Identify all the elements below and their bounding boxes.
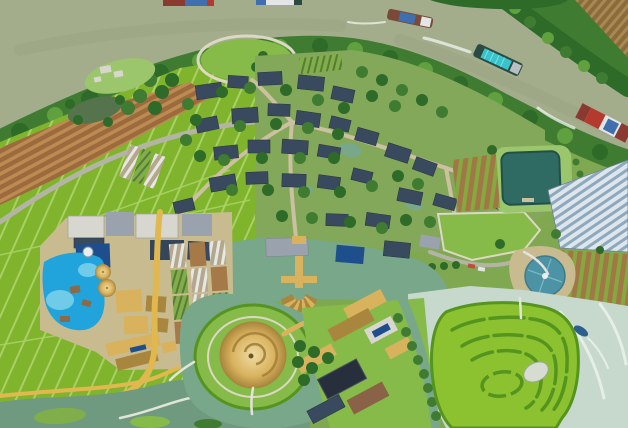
tree xyxy=(424,216,436,228)
tree xyxy=(344,216,356,228)
spa-pool xyxy=(83,247,93,257)
tree xyxy=(366,180,378,192)
tree xyxy=(302,122,314,134)
barge-hull xyxy=(256,0,266,5)
tree xyxy=(244,82,256,94)
tree xyxy=(226,184,238,196)
barge-hull xyxy=(266,0,294,5)
gold-roof xyxy=(124,316,149,335)
hall xyxy=(106,212,134,236)
roof xyxy=(383,241,410,259)
pool-deck xyxy=(60,316,70,322)
tree xyxy=(332,128,344,140)
gold-roof xyxy=(115,289,142,313)
plot xyxy=(209,240,227,265)
tree xyxy=(407,341,417,351)
round-tree xyxy=(294,340,306,352)
tree xyxy=(103,117,113,127)
tree xyxy=(234,120,246,132)
tree xyxy=(73,115,83,125)
aerial-photo xyxy=(0,0,628,428)
tree xyxy=(524,16,536,28)
tree xyxy=(65,99,75,109)
barge-hull xyxy=(294,0,302,5)
navy-roof xyxy=(335,245,364,264)
barge-hull xyxy=(207,0,214,6)
tree xyxy=(560,46,572,58)
tree xyxy=(376,222,388,234)
barge-top-left xyxy=(163,0,214,6)
tree xyxy=(413,355,423,365)
tree xyxy=(194,150,206,162)
bush xyxy=(577,171,584,178)
tree xyxy=(148,101,162,115)
tree xyxy=(280,84,292,96)
tree xyxy=(182,98,194,110)
hall xyxy=(182,214,212,236)
round-tree xyxy=(308,346,320,358)
barge-hull xyxy=(185,0,207,6)
tree xyxy=(401,327,411,337)
marsh-islet xyxy=(130,416,170,428)
tree xyxy=(400,214,412,226)
pier-crossbar xyxy=(281,276,317,283)
tree xyxy=(431,411,441,421)
pool-shallow xyxy=(78,263,98,277)
tree xyxy=(190,114,202,126)
tree xyxy=(294,152,306,164)
roof xyxy=(248,140,270,153)
tree xyxy=(312,38,328,54)
cone-tip xyxy=(106,287,108,289)
tree xyxy=(276,210,288,222)
tree xyxy=(412,178,424,190)
hall xyxy=(68,216,104,238)
tree xyxy=(592,144,608,160)
tree xyxy=(440,262,448,270)
tree xyxy=(416,94,428,106)
tree xyxy=(389,100,401,112)
pool-shallow xyxy=(46,290,74,310)
tree xyxy=(298,186,310,198)
tree xyxy=(376,74,388,86)
plot xyxy=(211,266,229,291)
plot xyxy=(169,243,187,268)
tree xyxy=(452,261,460,269)
plot xyxy=(191,268,209,293)
terraced-rows xyxy=(452,154,500,212)
maze-entrance xyxy=(520,298,521,318)
tree xyxy=(306,212,318,224)
tree xyxy=(165,73,179,87)
round-tree xyxy=(298,374,310,386)
tree xyxy=(393,313,403,323)
tree xyxy=(180,134,192,146)
roof xyxy=(282,139,309,155)
tree xyxy=(423,383,433,393)
pier-gate xyxy=(292,236,306,244)
tree xyxy=(338,102,350,114)
tree xyxy=(419,369,429,379)
tree xyxy=(436,106,448,118)
roof xyxy=(246,172,268,185)
tree xyxy=(596,246,604,254)
tree xyxy=(578,60,590,72)
roof xyxy=(282,174,306,188)
tree xyxy=(216,86,228,98)
tree xyxy=(155,85,169,99)
roof xyxy=(232,107,259,124)
tree xyxy=(495,239,505,249)
pond-pier xyxy=(522,198,534,202)
barge-top-center xyxy=(256,0,302,5)
tree xyxy=(366,90,378,102)
bush xyxy=(573,159,580,166)
tree xyxy=(334,186,346,198)
tree xyxy=(312,94,324,106)
aerial-photo-canvas xyxy=(0,0,628,428)
tree xyxy=(551,229,561,239)
tree xyxy=(256,152,268,164)
tree xyxy=(121,101,135,115)
plot xyxy=(189,242,207,267)
tree xyxy=(356,66,368,78)
tree xyxy=(392,170,404,182)
roof xyxy=(297,75,324,92)
round-tree xyxy=(292,356,304,368)
plot xyxy=(171,269,189,294)
roof xyxy=(268,104,290,117)
tree xyxy=(596,72,608,84)
tree xyxy=(328,152,340,164)
roof xyxy=(258,71,283,85)
tree xyxy=(133,89,147,103)
barge-hull xyxy=(163,0,185,6)
south-complex xyxy=(292,289,441,428)
tree xyxy=(270,118,282,130)
tree xyxy=(396,84,408,96)
tree xyxy=(262,184,274,196)
tree xyxy=(557,128,573,144)
spiral-center xyxy=(249,354,254,359)
round-tree xyxy=(322,352,334,364)
tree xyxy=(218,154,230,166)
round-tree xyxy=(306,362,318,374)
cone-tip xyxy=(102,271,104,273)
tree xyxy=(542,32,554,44)
tree xyxy=(487,145,497,155)
